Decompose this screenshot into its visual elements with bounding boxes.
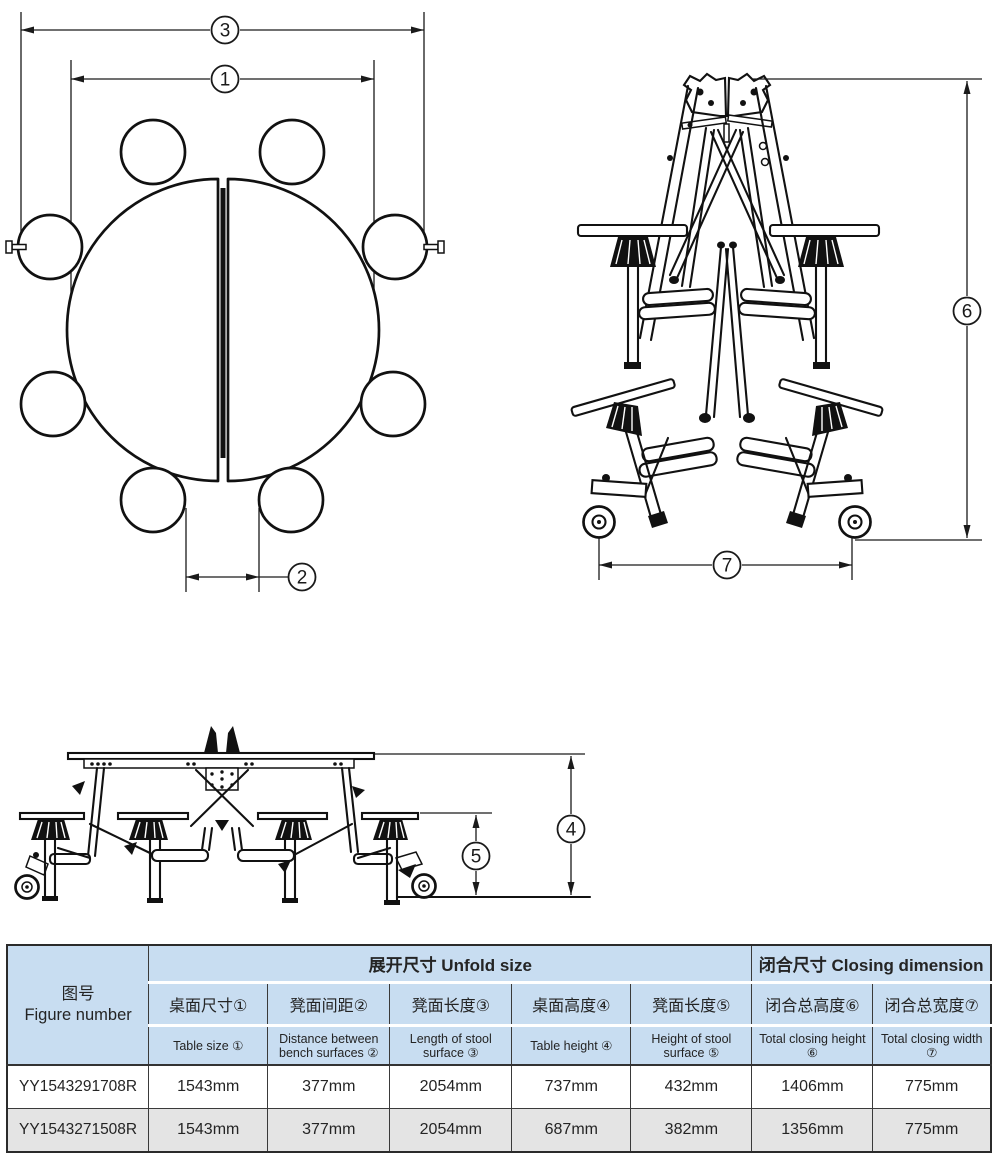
center-mechanism	[191, 768, 253, 850]
spec-cell: 1406mm	[752, 1065, 873, 1109]
spec-cell: 1543mm	[149, 1065, 268, 1109]
spec-cell: 687mm	[512, 1109, 631, 1153]
col-header-zh: 闭合总宽度⑦	[873, 983, 991, 1026]
col-header-en: Table size ①	[149, 1026, 268, 1066]
figure-number-header: 图号 Figure number	[7, 945, 149, 1065]
col-header-zh: 凳面长度⑤	[631, 983, 752, 1026]
col-header-en: Length of stool surface ③	[390, 1026, 512, 1066]
figure-number-cell: YY1543271508R	[7, 1109, 149, 1153]
spec-row: YY1543291708R 1543mm 377mm 2054mm 737mm …	[7, 1065, 991, 1109]
figure-number-header-en: Figure number	[24, 1006, 131, 1024]
dimension-2: 2	[186, 564, 316, 591]
spec-cell: 775mm	[873, 1109, 991, 1153]
spec-cell: 382mm	[631, 1109, 752, 1153]
tabletop-side	[68, 726, 374, 768]
dimension-7: 7	[599, 538, 852, 580]
folded-cross-braces	[669, 130, 785, 423]
dimension-3: 3	[21, 17, 424, 44]
folded-upper-stools	[578, 225, 879, 369]
spec-cell: 432mm	[631, 1065, 752, 1109]
col-header-zh: 凳面长度③	[390, 983, 512, 1026]
dim-label-5: 5	[471, 847, 482, 868]
dimension-1: 1	[71, 66, 374, 93]
dim-label-7: 7	[722, 556, 733, 577]
col-header-zh: 闭合总高度⑥	[752, 983, 873, 1026]
col-header-en: Table height ④	[512, 1026, 631, 1066]
spec-row: YY1543271508R 1543mm 377mm 2054mm 687mm …	[7, 1109, 991, 1153]
spec-cell: 2054mm	[390, 1109, 512, 1153]
hinge-plates	[682, 74, 772, 142]
spec-cell: 737mm	[512, 1065, 631, 1109]
folded-mid-beams	[639, 289, 816, 320]
dim-label-6: 6	[962, 302, 973, 323]
spec-cell: 2054mm	[390, 1065, 512, 1109]
folded-lower-stools	[571, 379, 883, 528]
table-top-halves	[67, 179, 379, 481]
spec-table: 图号 Figure number 展开尺寸 Unfold size 闭合尺寸 C…	[6, 944, 992, 1153]
spec-cell: 377mm	[268, 1109, 390, 1153]
col-header-en: Total closing height ⑥	[752, 1026, 873, 1066]
spec-cell: 1543mm	[149, 1109, 268, 1153]
spec-cell: 377mm	[268, 1065, 390, 1109]
dim-label-1: 1	[220, 70, 231, 91]
folded-view-diagram: 6 7	[530, 40, 1000, 600]
col-header-zh: 桌面尺寸①	[149, 983, 268, 1026]
figure-number-header-zh: 图号	[62, 985, 95, 1003]
col-header-en: Height of stool surface ⑤	[631, 1026, 752, 1066]
fold-flap-right	[226, 726, 240, 753]
group-header-row: 图号 Figure number 展开尺寸 Unfold size 闭合尺寸 C…	[7, 945, 991, 983]
col-header-en: Distance between bench surfaces ②	[268, 1026, 390, 1066]
dim-label-3: 3	[220, 21, 231, 42]
unfold-size-group-header: 展开尺寸 Unfold size	[149, 945, 752, 983]
folded-casters	[584, 474, 871, 538]
chinese-header-row: 桌面尺寸① 凳面间距② 凳面长度③ 桌面高度④ 凳面长度⑤ 闭合总高度⑥ 闭合总…	[7, 983, 991, 1026]
english-header-row: Table size ① Distance between bench surf…	[7, 1026, 991, 1066]
top-view-diagram: 3 1 2	[0, 0, 470, 620]
col-header-zh: 桌面高度④	[512, 983, 631, 1026]
fold-flap-left	[204, 726, 218, 753]
col-header-en: Total closing width ⑦	[873, 1026, 991, 1066]
spec-cell: 1356mm	[752, 1109, 873, 1153]
figure-number-cell: YY1543291708R	[7, 1065, 149, 1109]
dim-label-4: 4	[566, 820, 577, 841]
col-header-zh: 凳面间距②	[268, 983, 390, 1026]
spec-cell: 775mm	[873, 1065, 991, 1109]
closing-dimension-group-header: 闭合尺寸 Closing dimension	[752, 945, 991, 983]
side-view-diagram: 4 5	[0, 698, 620, 933]
dim-label-2: 2	[297, 568, 308, 589]
